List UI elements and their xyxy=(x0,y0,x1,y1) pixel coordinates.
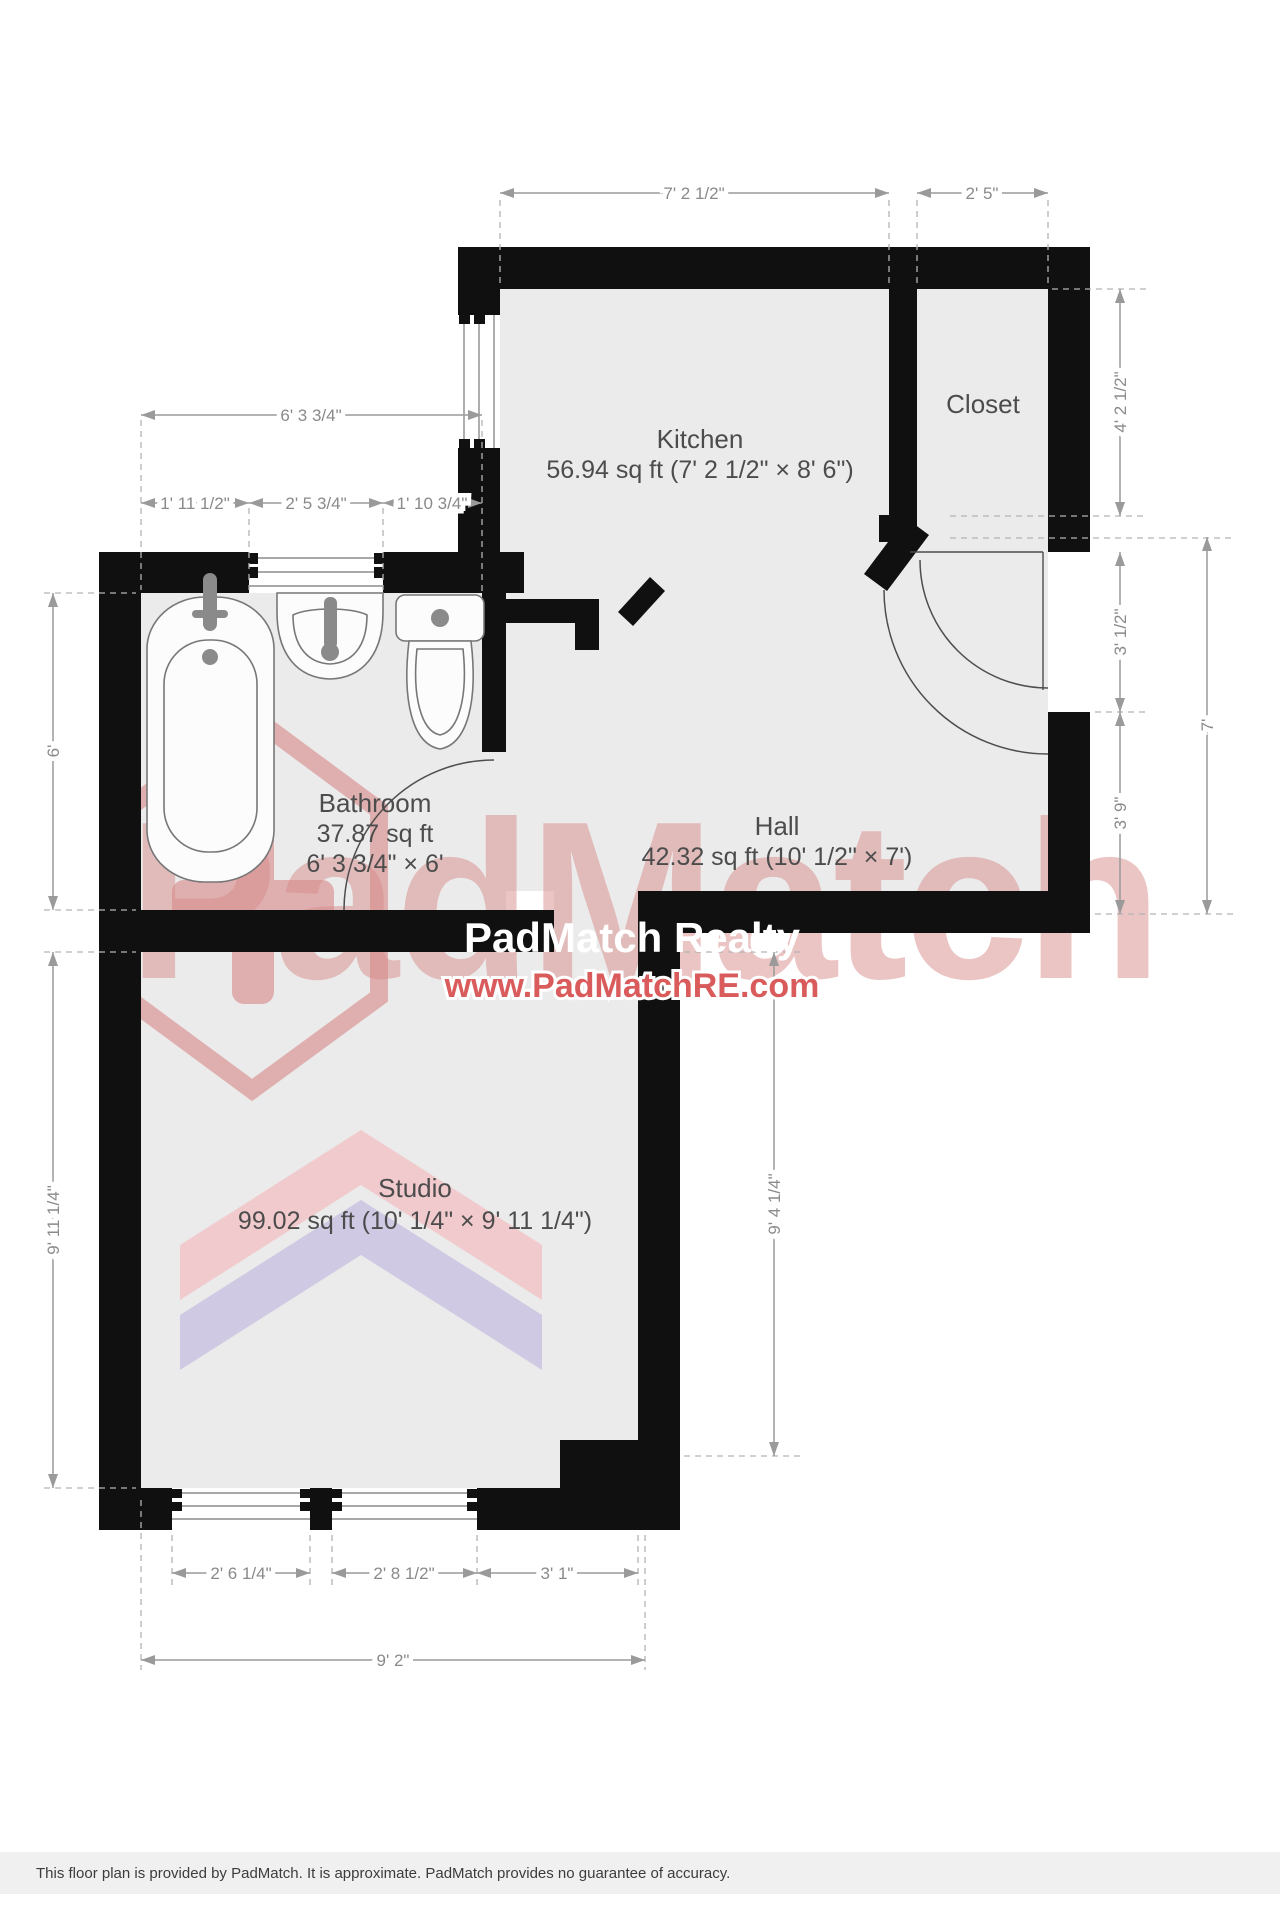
floor-plan-drawing: PadMatch xyxy=(0,0,1280,1920)
wall-right-upper xyxy=(1048,289,1090,552)
footer-disclaimer: This floor plan is provided by PadMatch.… xyxy=(0,1865,730,1882)
dim-right-upper: 3' 1/2" xyxy=(1111,608,1130,655)
kitchen-window xyxy=(459,315,494,448)
floor-plan-page: PadMatch xyxy=(0,0,1280,1920)
watermark-url: www.PadMatchRE.com xyxy=(444,967,820,1005)
dim-right-lower: 3' 9" xyxy=(1111,797,1130,830)
wall-kitchen-left-upper xyxy=(458,247,500,315)
wall-bath-top-left xyxy=(99,552,249,593)
bathroom-label: Bathroom xyxy=(319,788,432,818)
wall-kitchen-bottom-stub xyxy=(482,599,599,623)
wall-stub-jamb xyxy=(575,623,599,650)
wall-bath-top-right xyxy=(383,552,524,593)
dim-top-closet: 2' 5" xyxy=(966,184,999,203)
dim-bottom-total: 9' 2" xyxy=(377,1651,410,1670)
wall-kitchen-left-lower xyxy=(458,448,500,593)
bathroom-window xyxy=(249,553,383,586)
bathroom-area-label: 37.87 sq ft xyxy=(317,820,434,848)
wall-studio-bottom-mid xyxy=(310,1488,332,1530)
dim-bath-seg1: 1' 11 1/2" xyxy=(160,494,229,513)
dim-right-closet: 4' 2 1/2" xyxy=(1111,371,1130,432)
wall-top xyxy=(458,247,1090,289)
closet-label: Closet xyxy=(946,389,1020,419)
wall-studio-notch xyxy=(560,1440,638,1488)
kitchen-label: Kitchen xyxy=(657,424,744,454)
dim-left-bath: 6' xyxy=(44,745,63,758)
hall-label: Hall xyxy=(755,811,800,841)
dim-bath-seg3: 1' 10 3/4" xyxy=(397,494,468,513)
tub-faucet xyxy=(203,573,217,631)
studio-label: Studio xyxy=(378,1173,452,1203)
wall-studio-bottom-right xyxy=(477,1488,680,1530)
footer-bar: This floor plan is provided by PadMatch.… xyxy=(0,1852,1280,1894)
hall-area-label: 42.32 sq ft (10' 1/2" × 7') xyxy=(642,843,913,871)
studio-window-2 xyxy=(332,1489,477,1519)
wall-kitchen-closet-divider xyxy=(889,289,917,519)
dim-bottom-win1: 2' 6 1/4" xyxy=(210,1564,271,1583)
dim-bottom-win2: 2' 8 1/2" xyxy=(373,1564,434,1583)
bathroom-size-label: 6' 3 3/4" × 6' xyxy=(306,850,443,878)
studio-area-label: 99.02 sq ft (10' 1/4" × 9' 11 1/4") xyxy=(238,1207,592,1235)
dim-bath-top-total: 6' 3 3/4" xyxy=(280,406,341,425)
watermark-text: PadMatch Realty www.PadMatchRE.com xyxy=(444,914,820,1005)
kitchen-area-label: 56.94 sq ft (7' 2 1/2" × 8' 6") xyxy=(546,456,853,484)
tub-drain xyxy=(202,649,218,665)
dim-top-kitchen: 7' 2 1/2" xyxy=(663,184,724,203)
dim-right-total: 7' xyxy=(1198,719,1217,732)
watermark-title: PadMatch Realty xyxy=(464,914,801,961)
studio-window-1 xyxy=(172,1489,310,1519)
toilet-flush-button xyxy=(431,609,449,627)
wall-left xyxy=(99,552,141,1530)
sink-faucet xyxy=(324,597,337,649)
dim-studio-right: 9' 4 1/4" xyxy=(765,1173,784,1234)
dim-bottom-seg3: 3' 1" xyxy=(541,1564,574,1583)
dim-left-studio: 9' 11 1/4" xyxy=(44,1185,63,1254)
bathtub xyxy=(147,573,274,882)
dim-bath-seg2: 2' 5 3/4" xyxy=(285,494,346,513)
